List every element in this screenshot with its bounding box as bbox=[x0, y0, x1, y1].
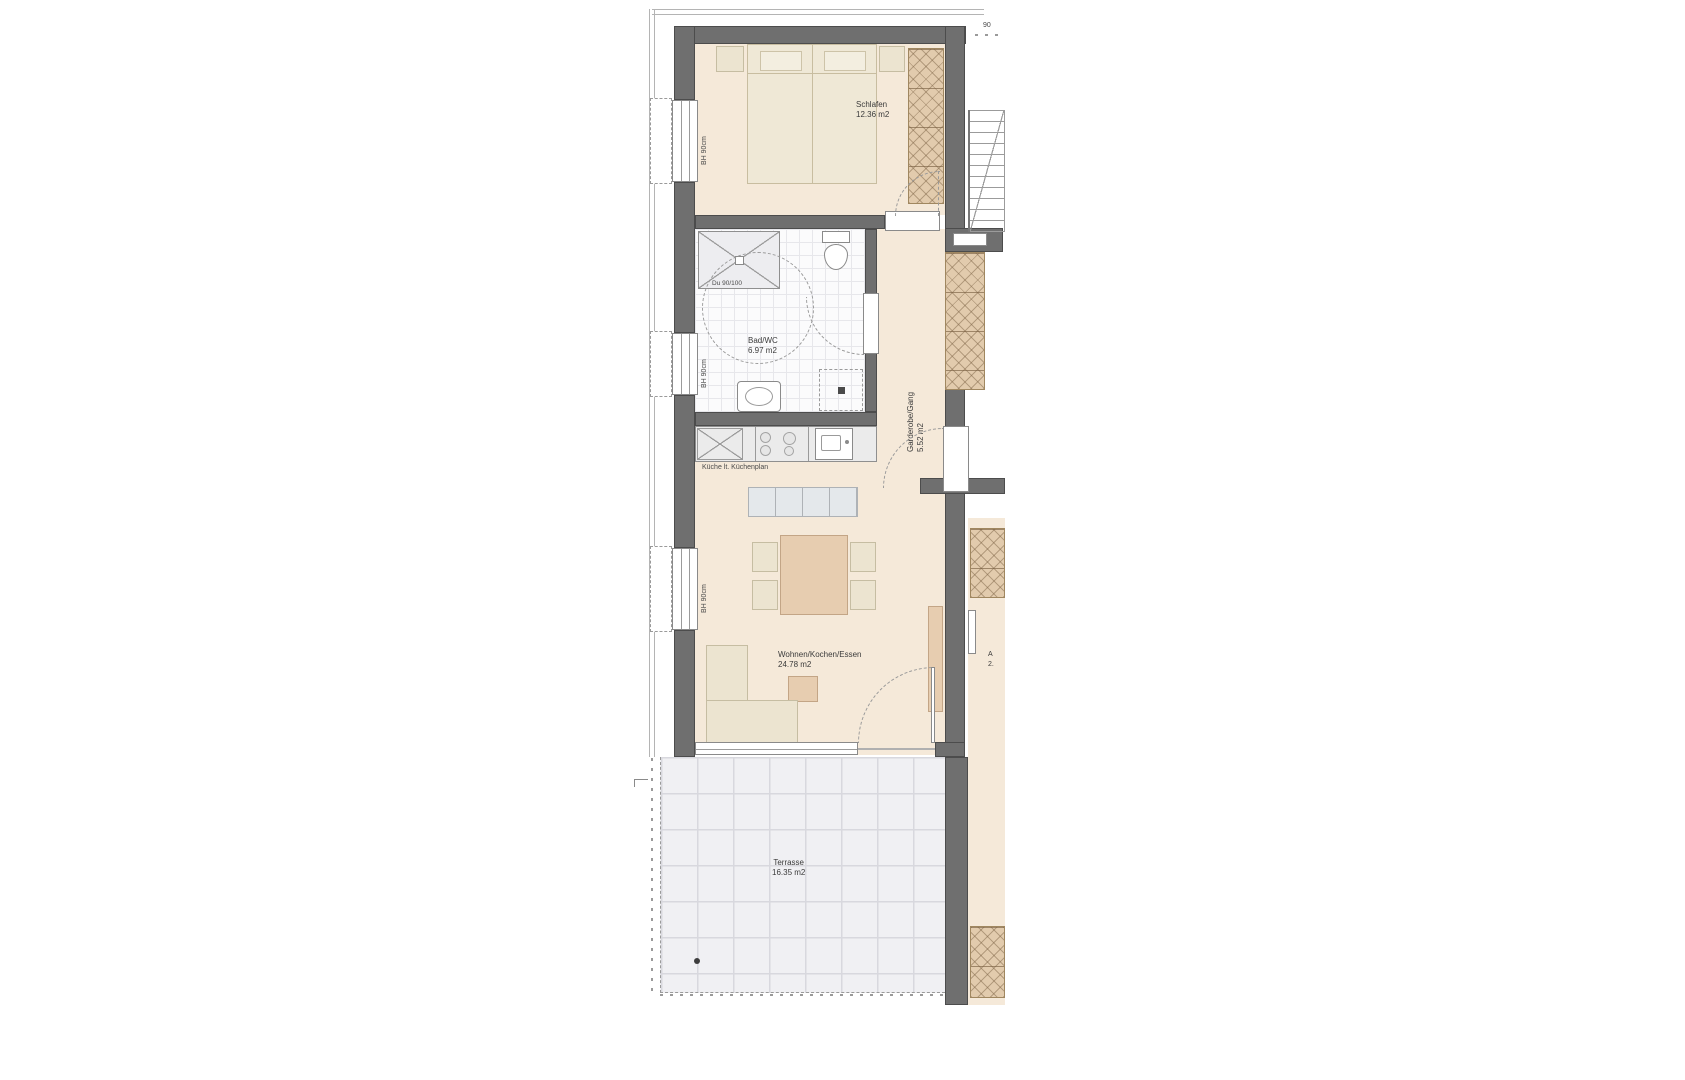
neighbor-clip: 90 A 2. bbox=[0, 0, 1005, 1080]
neighbor-room-label: A 2. bbox=[988, 650, 994, 670]
neighbor-room-name-fragment: A bbox=[988, 650, 994, 660]
stairs bbox=[968, 110, 1005, 232]
neighbor-wardrobe-top bbox=[970, 528, 1005, 598]
dimension-top-right: 90 bbox=[983, 22, 991, 30]
dimension-ticks-top-right bbox=[975, 34, 1005, 36]
neighbor-room-area-fragment: 2. bbox=[988, 660, 994, 670]
floorplan-canvas: Schlafen 12.36 m2 Du 90/100 Bad/WC 6.97 … bbox=[0, 0, 1685, 1080]
neighbor-door-frame bbox=[968, 610, 976, 654]
neighbor-wardrobe-bottom bbox=[970, 926, 1005, 998]
